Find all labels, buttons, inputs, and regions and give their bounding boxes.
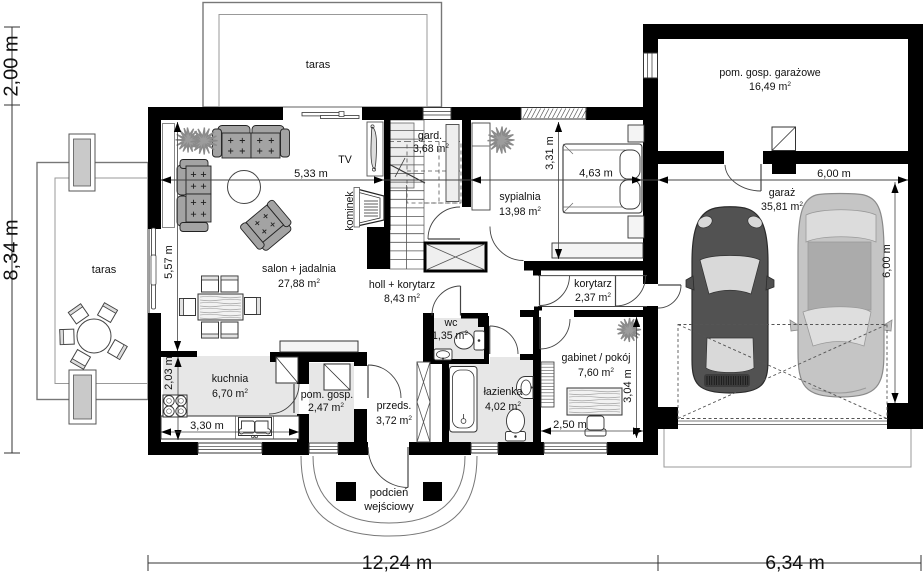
svg-text:3,04 m: 3,04 m	[622, 369, 634, 403]
svg-text:gabinet / pokój: gabinet / pokój	[562, 352, 631, 364]
svg-text:wc: wc	[444, 317, 459, 329]
svg-text:korytarz: korytarz	[574, 278, 612, 290]
svg-text:5,33 m: 5,33 m	[294, 168, 328, 180]
svg-text:8,34 m: 8,34 m	[1, 219, 23, 280]
svg-text:4,02 m2: 4,02 m2	[485, 401, 521, 413]
svg-text:kominek: kominek	[344, 191, 356, 231]
svg-text:przeds.: przeds.	[377, 400, 412, 412]
svg-text:3,31 m: 3,31 m	[544, 136, 556, 170]
svg-text:2,50 m: 2,50 m	[553, 419, 587, 431]
svg-text:6,34 m: 6,34 m	[765, 552, 825, 573]
svg-text:35,81 m2: 35,81 m2	[761, 201, 803, 213]
svg-text:pom. gosp.: pom. gosp.	[301, 389, 353, 401]
svg-text:4,63 m: 4,63 m	[579, 168, 613, 180]
svg-text:2,03 m: 2,03 m	[163, 356, 175, 390]
svg-text:2,37 m2: 2,37 m2	[575, 292, 611, 304]
svg-text:1,35 m2: 1,35 m2	[432, 330, 468, 342]
svg-text:13,98 m2: 13,98 m2	[499, 206, 541, 218]
svg-text:5,57 m: 5,57 m	[163, 245, 175, 279]
svg-text:kuchnia: kuchnia	[212, 373, 249, 385]
svg-text:holl + korytarz: holl + korytarz	[369, 279, 435, 291]
svg-text:3,30 m: 3,30 m	[190, 420, 224, 432]
svg-text:6,00 m: 6,00 m	[881, 244, 893, 278]
svg-text:salon + jadalnia: salon + jadalnia	[262, 263, 336, 275]
svg-text:6,70 m2: 6,70 m2	[212, 388, 248, 400]
svg-text:pom. gosp. garażowe: pom. gosp. garażowe	[719, 67, 820, 79]
svg-text:gard.: gard.	[418, 130, 442, 142]
svg-text:taras: taras	[306, 59, 331, 71]
svg-text:sypialnia: sypialnia	[499, 191, 540, 203]
svg-text:7,60 m2: 7,60 m2	[578, 367, 614, 379]
svg-text:6,00 m: 6,00 m	[817, 168, 851, 180]
svg-text:TV: TV	[338, 154, 352, 166]
svg-text:taras: taras	[92, 264, 117, 276]
svg-text:8,43 m2: 8,43 m2	[384, 293, 420, 305]
svg-text:podcień: podcień	[370, 487, 409, 499]
svg-text:12,24 m: 12,24 m	[362, 552, 432, 573]
svg-text:wejściowy: wejściowy	[363, 501, 414, 513]
svg-text:2,00 m: 2,00 m	[1, 35, 23, 96]
svg-text:2,47 m2: 2,47 m2	[308, 402, 344, 414]
svg-text:3,68 m2: 3,68 m2	[413, 143, 449, 155]
svg-text:3,72 m2: 3,72 m2	[376, 415, 412, 427]
svg-text:garaż: garaż	[769, 187, 796, 199]
svg-text:27,88 m2: 27,88 m2	[278, 278, 320, 290]
svg-text:łazienka: łazienka	[484, 386, 523, 398]
svg-text:16,49 m2: 16,49 m2	[749, 81, 791, 93]
